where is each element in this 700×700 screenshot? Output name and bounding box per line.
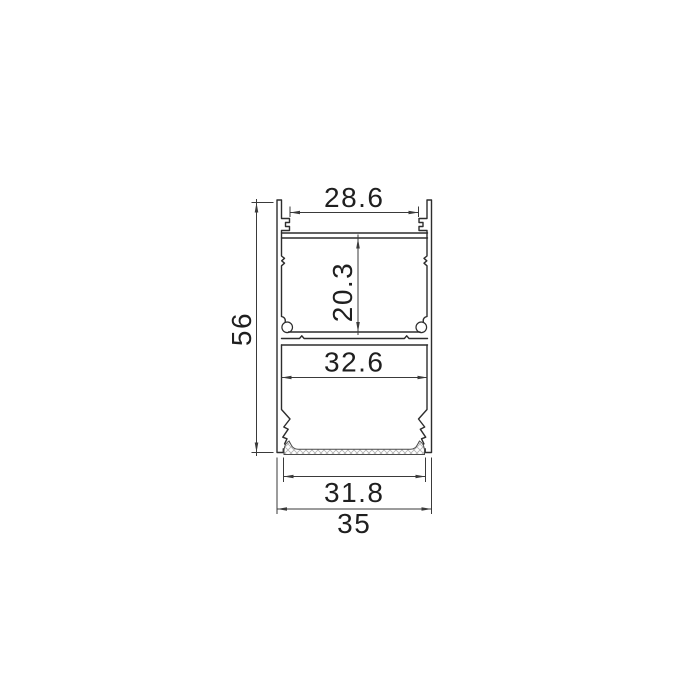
arrowhead-down <box>356 322 360 332</box>
drawing-canvas: 28.6 20.3 56 32.6 31.8 35 <box>0 0 700 700</box>
diffuser-strip <box>284 441 425 455</box>
arrowhead-right <box>409 211 419 215</box>
profile-drawing: 28.6 20.3 56 32.6 31.8 35 <box>0 0 700 700</box>
dimension-upper-cavity-height: 20.3 <box>327 235 360 336</box>
profile-outline <box>277 200 432 455</box>
dim-label-top-opening: 28.6 <box>324 182 385 213</box>
arrowhead-up <box>255 203 259 213</box>
arrowhead-right <box>422 507 432 511</box>
dimension-lower-cavity-width: 32.6 <box>282 347 428 380</box>
left-screw-port <box>282 322 293 333</box>
arrowhead-left <box>277 507 287 511</box>
dimension-top-opening: 28.6 <box>290 182 419 217</box>
arrowhead-left <box>290 211 300 215</box>
arrowhead-right <box>418 376 428 380</box>
arrowhead-right <box>416 475 426 479</box>
right-wall-lower-contour <box>419 345 428 448</box>
right-screw-port <box>416 322 427 333</box>
dim-label-lower-cavity-width: 32.6 <box>324 347 385 378</box>
divider-lower-edge <box>282 336 428 339</box>
dim-label-overall-height: 56 <box>226 312 257 346</box>
dimension-diffuser-width: 31.8 <box>284 458 426 509</box>
arrowhead-left <box>284 475 294 479</box>
left-wall-lower-contour <box>282 345 291 448</box>
dim-label-upper-cavity-height: 20.3 <box>327 262 358 323</box>
arrowhead-up <box>356 239 360 249</box>
arrowhead-left <box>282 376 292 380</box>
arrowhead-down <box>255 443 259 453</box>
dim-label-overall-width: 35 <box>337 508 371 539</box>
dimension-overall-height: 56 <box>226 199 274 456</box>
dim-label-diffuser-width: 31.8 <box>324 477 385 508</box>
